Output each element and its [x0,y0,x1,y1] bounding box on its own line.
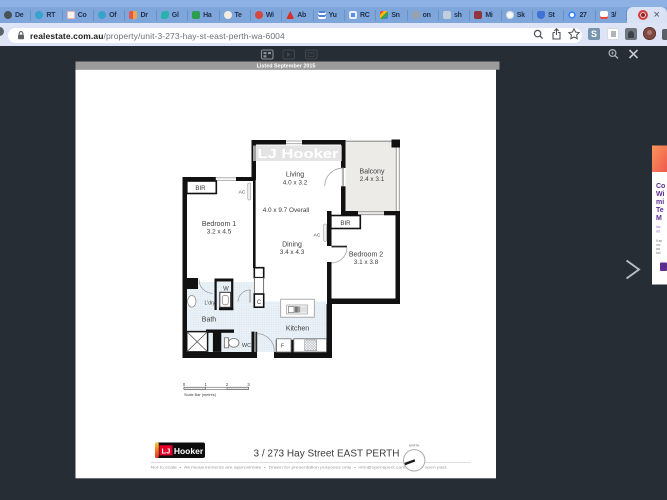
svg-text:3.4 x 4.3: 3.4 x 4.3 [280,249,305,256]
svg-text:Wi: Wi [656,191,665,198]
svg-text:Bath: Bath [202,316,217,323]
svg-text:Co: Co [656,183,665,190]
svg-text:Living: Living [286,172,304,179]
svg-text:4.0 x 3.2: 4.0 x 3.2 [283,179,308,186]
svg-text:Hooker: Hooker [174,446,204,456]
svg-text:Balcony: Balcony [360,168,385,175]
svg-text:Scale Bar (metres): Scale Bar (metres) [184,392,217,397]
svg-text:Bedroom 2: Bedroom 2 [349,251,383,258]
svg-text:int: int [656,230,660,234]
svg-text:W: W [223,287,229,293]
svg-text:mi: mi [656,199,664,206]
svg-text:NORTH: NORTH [409,444,420,448]
svg-text:Te: Te [656,207,664,214]
svg-text:LJ: LJ [162,446,171,455]
svg-text:Bedroom 1: Bedroom 1 [202,221,236,228]
svg-text:Dining: Dining [282,241,302,248]
svg-text:4.0 x 9.7 Overall: 4.0 x 9.7 Overall [263,207,310,214]
svg-text:Listed September 2015: Listed September 2015 [257,64,316,70]
svg-text:2.4 x 3.1: 2.4 x 3.1 [360,176,385,183]
svg-text:3.2 x 4.5: 3.2 x 4.5 [207,229,232,236]
svg-text:BIR: BIR [195,185,206,192]
svg-text:LJ Hooker: LJ Hooker [258,147,339,161]
svg-text:AC: AC [314,232,321,238]
svg-text:inc: inc [656,225,661,229]
svg-text:Not to scale • All measureme: Not to scale • All measurements are appr… [151,465,447,469]
svg-text:C: C [257,300,262,306]
svg-text:Kitchen: Kitchen [286,325,309,332]
svg-text:3 / 273 Hay Street EAST PERTH: 3 / 273 Hay Street EAST PERTH [254,449,400,460]
svg-text:3.1 x 3.8: 3.1 x 3.8 [354,259,379,266]
svg-text:WC: WC [242,343,251,349]
svg-text:L'dry: L'dry [204,300,215,306]
svg-text:BIR: BIR [340,220,351,227]
svg-text:tod: tod [656,251,661,255]
svg-text:M: M [656,215,662,222]
svg-text:AC: AC [239,189,246,195]
